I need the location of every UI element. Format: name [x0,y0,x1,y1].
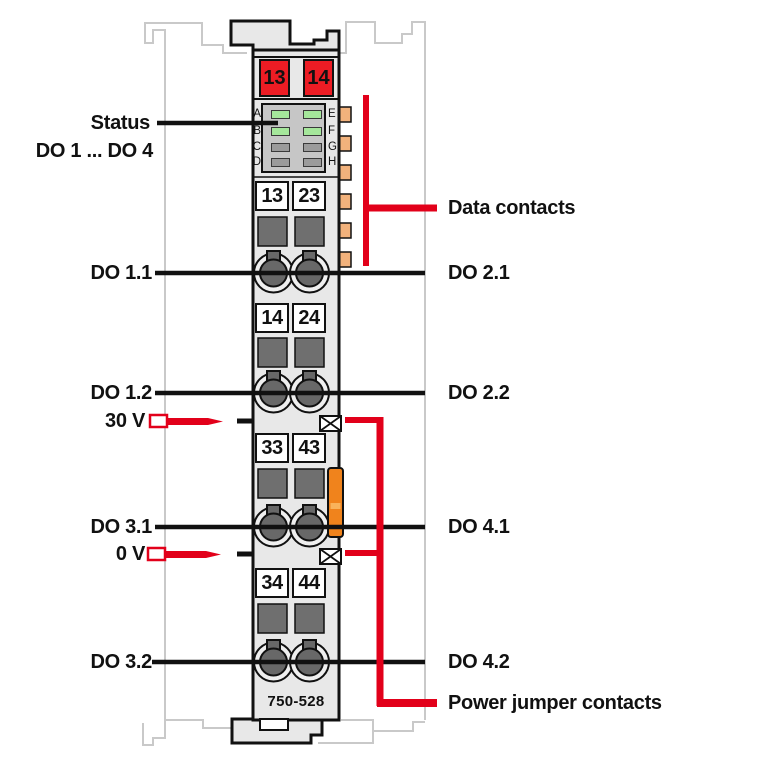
terminal-box-23: 23 [292,181,326,211]
status-led [271,158,290,167]
led-row-letter: H [328,157,340,168]
terminal-box-43: 43 [292,433,326,463]
terminal-number: 43 [298,437,319,460]
callout-do-4-1: DO 4.1 [448,516,510,538]
terminal-number: 14 [261,307,282,330]
terminal-number: 34 [261,572,282,595]
red-callout-brackets [345,95,437,706]
right-neighbor-bottom-outline [318,720,373,743]
callout-do-range: DO 1 ... DO 4 [36,140,153,162]
foot-notch [260,719,288,730]
module-top-profile [231,21,339,51]
callout-power-jumper-contacts: Power jumper contacts [448,692,662,714]
conductor-entry [258,217,287,246]
right-neighbor-bottom-step [373,722,425,731]
feed-arrow-0v-icon [148,548,221,560]
callout-data-contacts: Data contacts [448,197,575,219]
power-contact-14: 14 [303,59,334,97]
terminal-number: 23 [298,185,319,208]
callout-do-1-1: DO 1.1 [90,262,152,284]
terminal-box-24: 24 [292,303,326,333]
terminal-number: 33 [261,437,282,460]
callout-do-2-2: DO 2.2 [448,382,510,404]
terminal-box-14: 14 [255,303,289,333]
led-row-letter: C [249,142,261,153]
callout-0v: 0 V [116,543,145,565]
terminal-box-44: 44 [292,568,326,598]
conductor-entry [295,217,324,246]
conductor-entry [295,338,324,367]
latch-highlight [331,503,341,509]
conductor-entry [258,338,287,367]
terminal-number: 24 [298,307,319,330]
status-led [271,143,290,152]
conductor-entry [258,469,287,498]
power-jumper-contact-icon [320,549,341,564]
model-number: 750-528 [253,693,339,710]
power-jumper-contact-icon [320,416,341,431]
status-led [303,143,322,152]
feed-tick-30v [237,419,253,424]
terminal-box-13: 13 [255,181,289,211]
callout-do-4-2: DO 4.2 [448,651,510,673]
status-led [271,110,290,119]
callout-30v: 30 V [105,410,145,432]
diagram-canvas: 13 14 A B C D E F G H 13 23 14 24 33 43 … [0,0,768,768]
voltage-feed-arrows [148,415,223,560]
status-led [303,158,322,167]
callout-do-3-1: DO 3.1 [90,516,152,538]
status-led [303,127,322,136]
led-row-letter: F [328,126,340,137]
terminal-box-33: 33 [255,433,289,463]
terminal-box-34: 34 [255,568,289,598]
led-row-letter: G [328,142,340,153]
led-row-letter: D [249,157,261,168]
feed-tick-0v [237,552,253,557]
terminal-number: 13 [261,185,282,208]
terminal-number: 44 [298,572,319,595]
conductor-entry [258,604,287,633]
power-contact-14-label: 14 [307,67,329,90]
callout-do-2-1: DO 2.1 [448,262,510,284]
led-row-letter: E [328,109,340,120]
callout-do-1-2: DO 1.2 [90,382,152,404]
feed-arrow-30v-icon [150,415,223,427]
callout-status: Status [91,112,150,134]
left-neighbor-outline [143,23,247,745]
power-contact-13: 13 [259,59,290,97]
led-row-letter: B [249,126,261,137]
status-led [303,110,322,119]
led-row-letter: A [249,109,261,120]
conductor-entry [295,469,324,498]
status-led [271,127,290,136]
left-neighbor-bottom-outline [166,720,232,728]
power-contact-13-label: 13 [263,67,285,90]
conductor-entry [295,604,324,633]
callout-do-3-2: DO 3.2 [90,651,152,673]
